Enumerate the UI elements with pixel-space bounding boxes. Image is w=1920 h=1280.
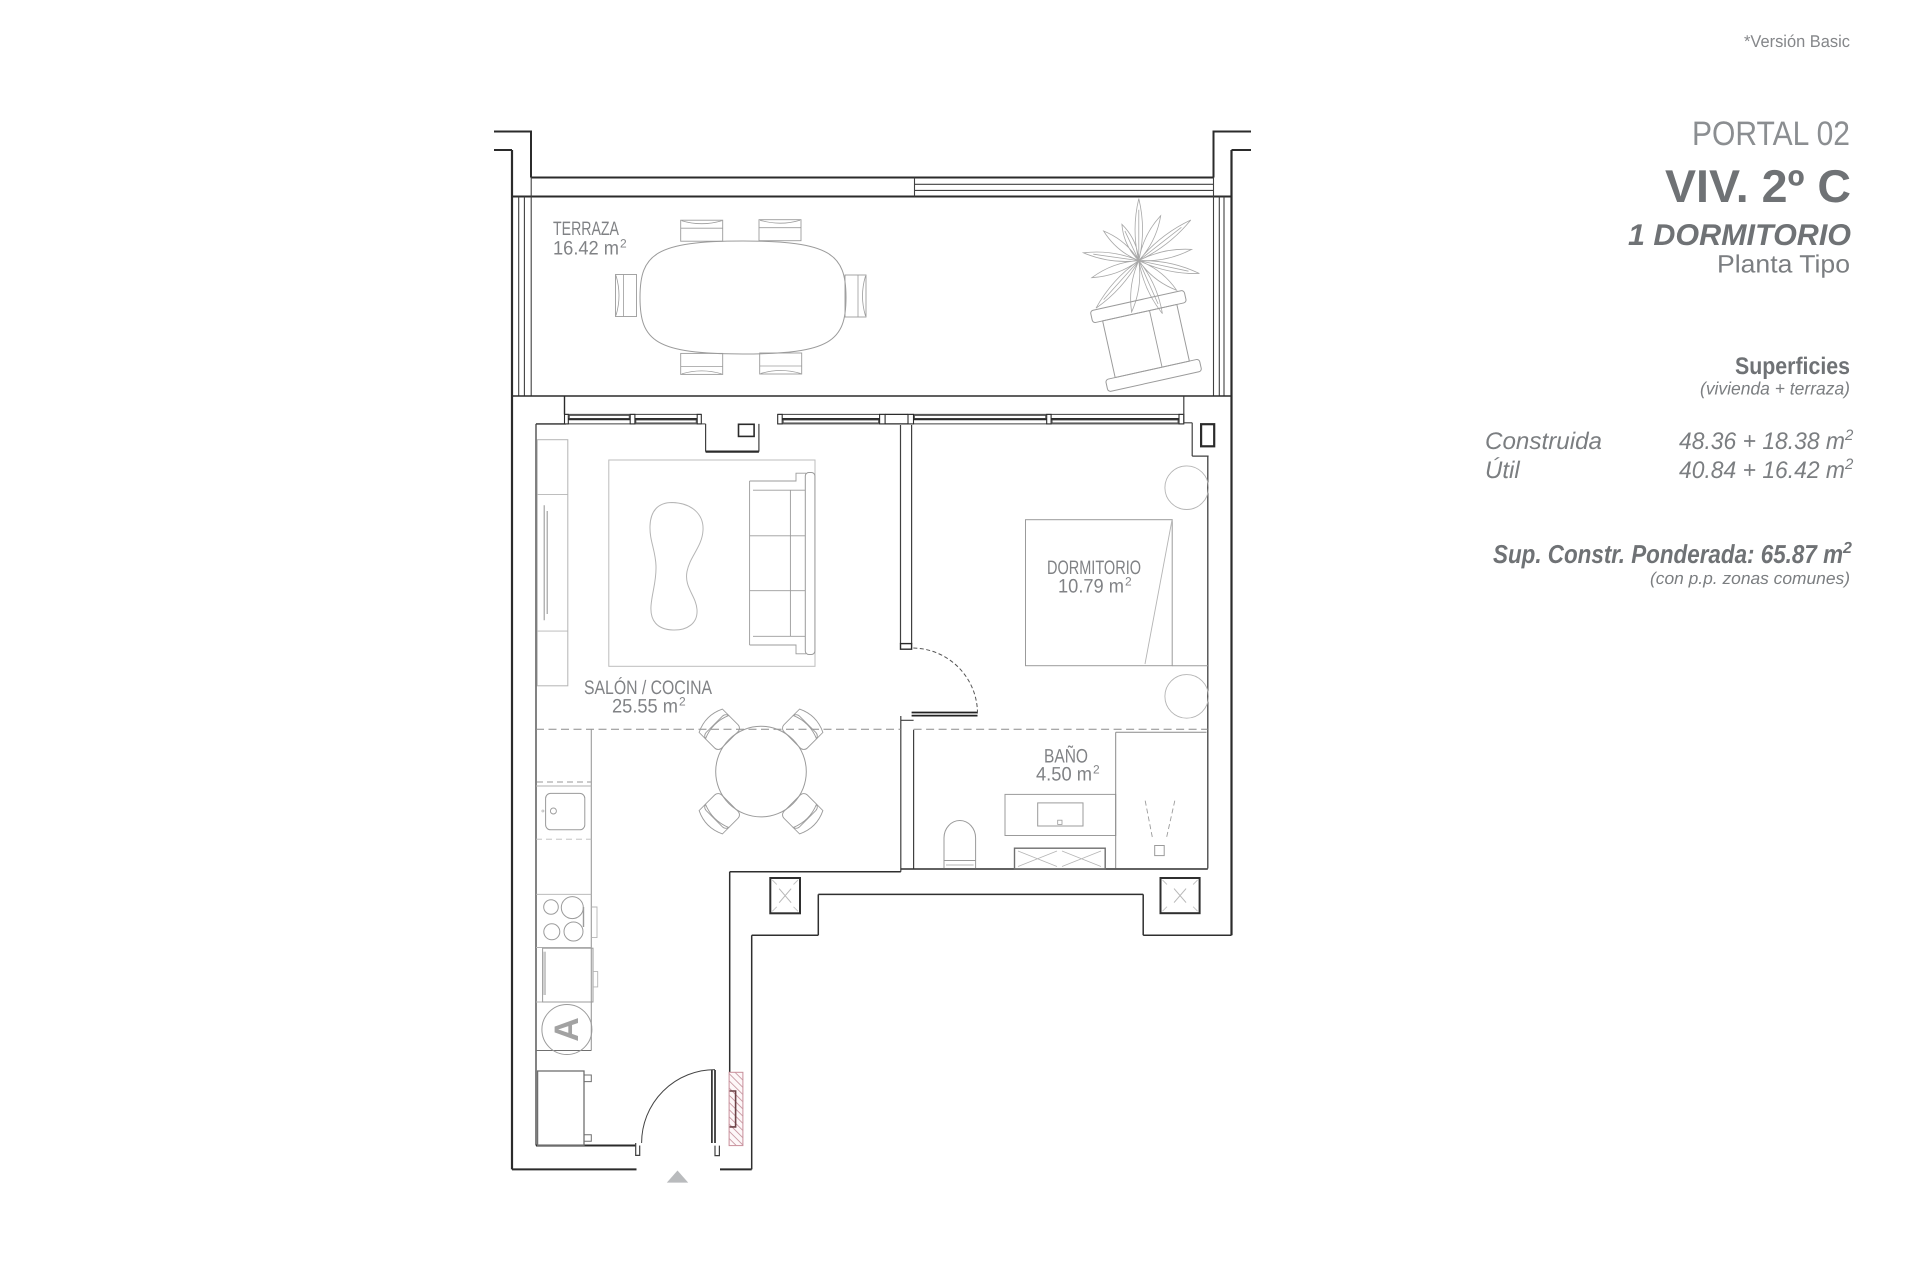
- svg-text:Construida: Construida: [1485, 428, 1602, 455]
- svg-text:10.79 m: 10.79 m: [1058, 576, 1124, 598]
- svg-text:Útil: Útil: [1485, 457, 1520, 484]
- svg-text:1 DORMITORIO: 1 DORMITORIO: [1628, 219, 1851, 252]
- svg-text:48.36 + 18.38 m: 48.36 + 18.38 m: [1679, 428, 1845, 455]
- svg-text:2: 2: [1093, 763, 1100, 777]
- svg-text:(vivienda + terraza): (vivienda + terraza): [1700, 379, 1850, 399]
- svg-text:4.50 m: 4.50 m: [1036, 764, 1092, 786]
- svg-text:2: 2: [679, 695, 686, 709]
- svg-text:16.42 m: 16.42 m: [553, 238, 619, 260]
- svg-text:Superficies: Superficies: [1735, 353, 1850, 380]
- svg-text:2: 2: [620, 237, 627, 251]
- svg-text:40.84 + 16.42 m: 40.84 + 16.42 m: [1679, 457, 1845, 484]
- svg-text:Sup. Constr. Ponderada: 65.87: Sup. Constr. Ponderada: 65.87 m: [1493, 539, 1843, 569]
- svg-text:Planta Tipo: Planta Tipo: [1717, 251, 1850, 279]
- svg-text:2: 2: [1842, 540, 1852, 557]
- svg-text:25.55 m: 25.55 m: [612, 696, 678, 718]
- svg-text:VIV. 2º C: VIV. 2º C: [1665, 160, 1851, 212]
- svg-text:*Versión Basic: *Versión Basic: [1744, 32, 1850, 51]
- svg-text:(con p.p. zonas comunes): (con p.p. zonas comunes): [1650, 569, 1850, 588]
- svg-text:2: 2: [1844, 427, 1854, 444]
- svg-text:PORTAL 02: PORTAL 02: [1692, 115, 1850, 153]
- svg-text:2: 2: [1844, 456, 1854, 473]
- svg-text:2: 2: [1125, 575, 1132, 589]
- svg-text:A: A: [548, 1017, 586, 1042]
